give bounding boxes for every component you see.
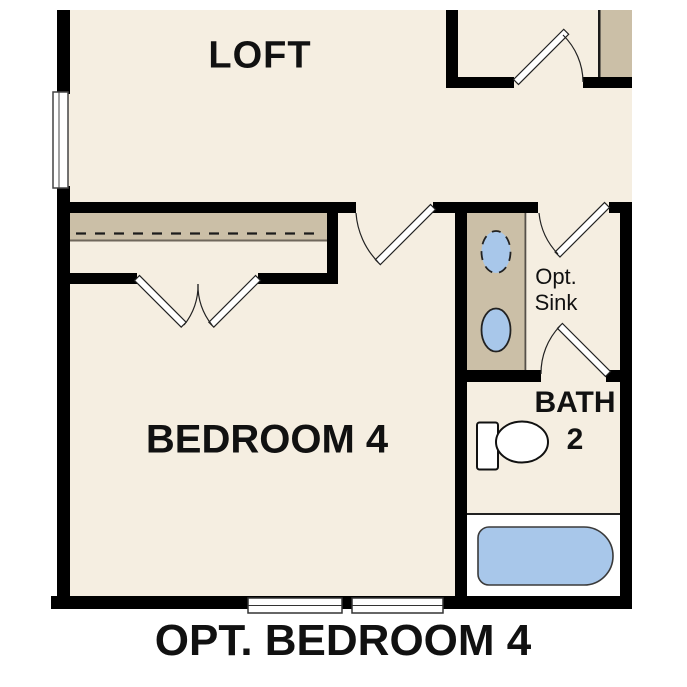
stair-closet-divider (598, 10, 601, 77)
bedroom-room-label: BEDROOM 4 (146, 418, 388, 463)
loft-bottom-wall-mid (433, 202, 538, 213)
closet-right-wall (327, 211, 338, 284)
left-wall-upper (57, 10, 70, 94)
window-bottom-2 (352, 598, 443, 613)
tub-alcove-line (467, 513, 620, 515)
left-wall-lower (57, 186, 70, 608)
toilet-tank (477, 423, 498, 470)
bath-label-line1: BATH (534, 384, 615, 421)
window-left (53, 92, 68, 188)
opt-sink-label: Opt. Sink (535, 264, 578, 316)
bath-divider-wall (467, 370, 541, 382)
bath-room-label: BATH 2 (534, 384, 615, 458)
window-bottom-1 (248, 598, 342, 613)
stair-closet (600, 10, 632, 77)
bathtub (478, 527, 613, 585)
closet-shelf (70, 212, 327, 241)
opt-sink-label-line1: Opt. (535, 264, 578, 290)
bath-label-line2: 2 (534, 421, 615, 458)
closet-bottom-wall-left (57, 273, 137, 284)
loft-room-label: LOFT (208, 35, 311, 78)
sink-basin (482, 309, 511, 352)
floorplan-drawing (0, 0, 687, 687)
hall-wall-left (446, 77, 514, 88)
floorplan-page: LOFT BEDROOM 4 BATH 2 Opt. Sink OPT. BED… (0, 0, 687, 687)
hall-wall-right (583, 77, 632, 88)
optional-sink-basin (482, 231, 511, 273)
closet-shelf-edge (70, 240, 327, 242)
closet-bottom-wall-right (258, 273, 338, 284)
closet-top-wall (57, 202, 356, 213)
right-wall (620, 202, 632, 608)
loft-divider-wall (446, 10, 458, 88)
sink-counter-edge (525, 212, 527, 373)
plan-caption: OPT. BEDROOM 4 (155, 616, 532, 666)
opt-sink-label-line2: Sink (535, 290, 578, 316)
bath-left-wall (455, 211, 467, 608)
